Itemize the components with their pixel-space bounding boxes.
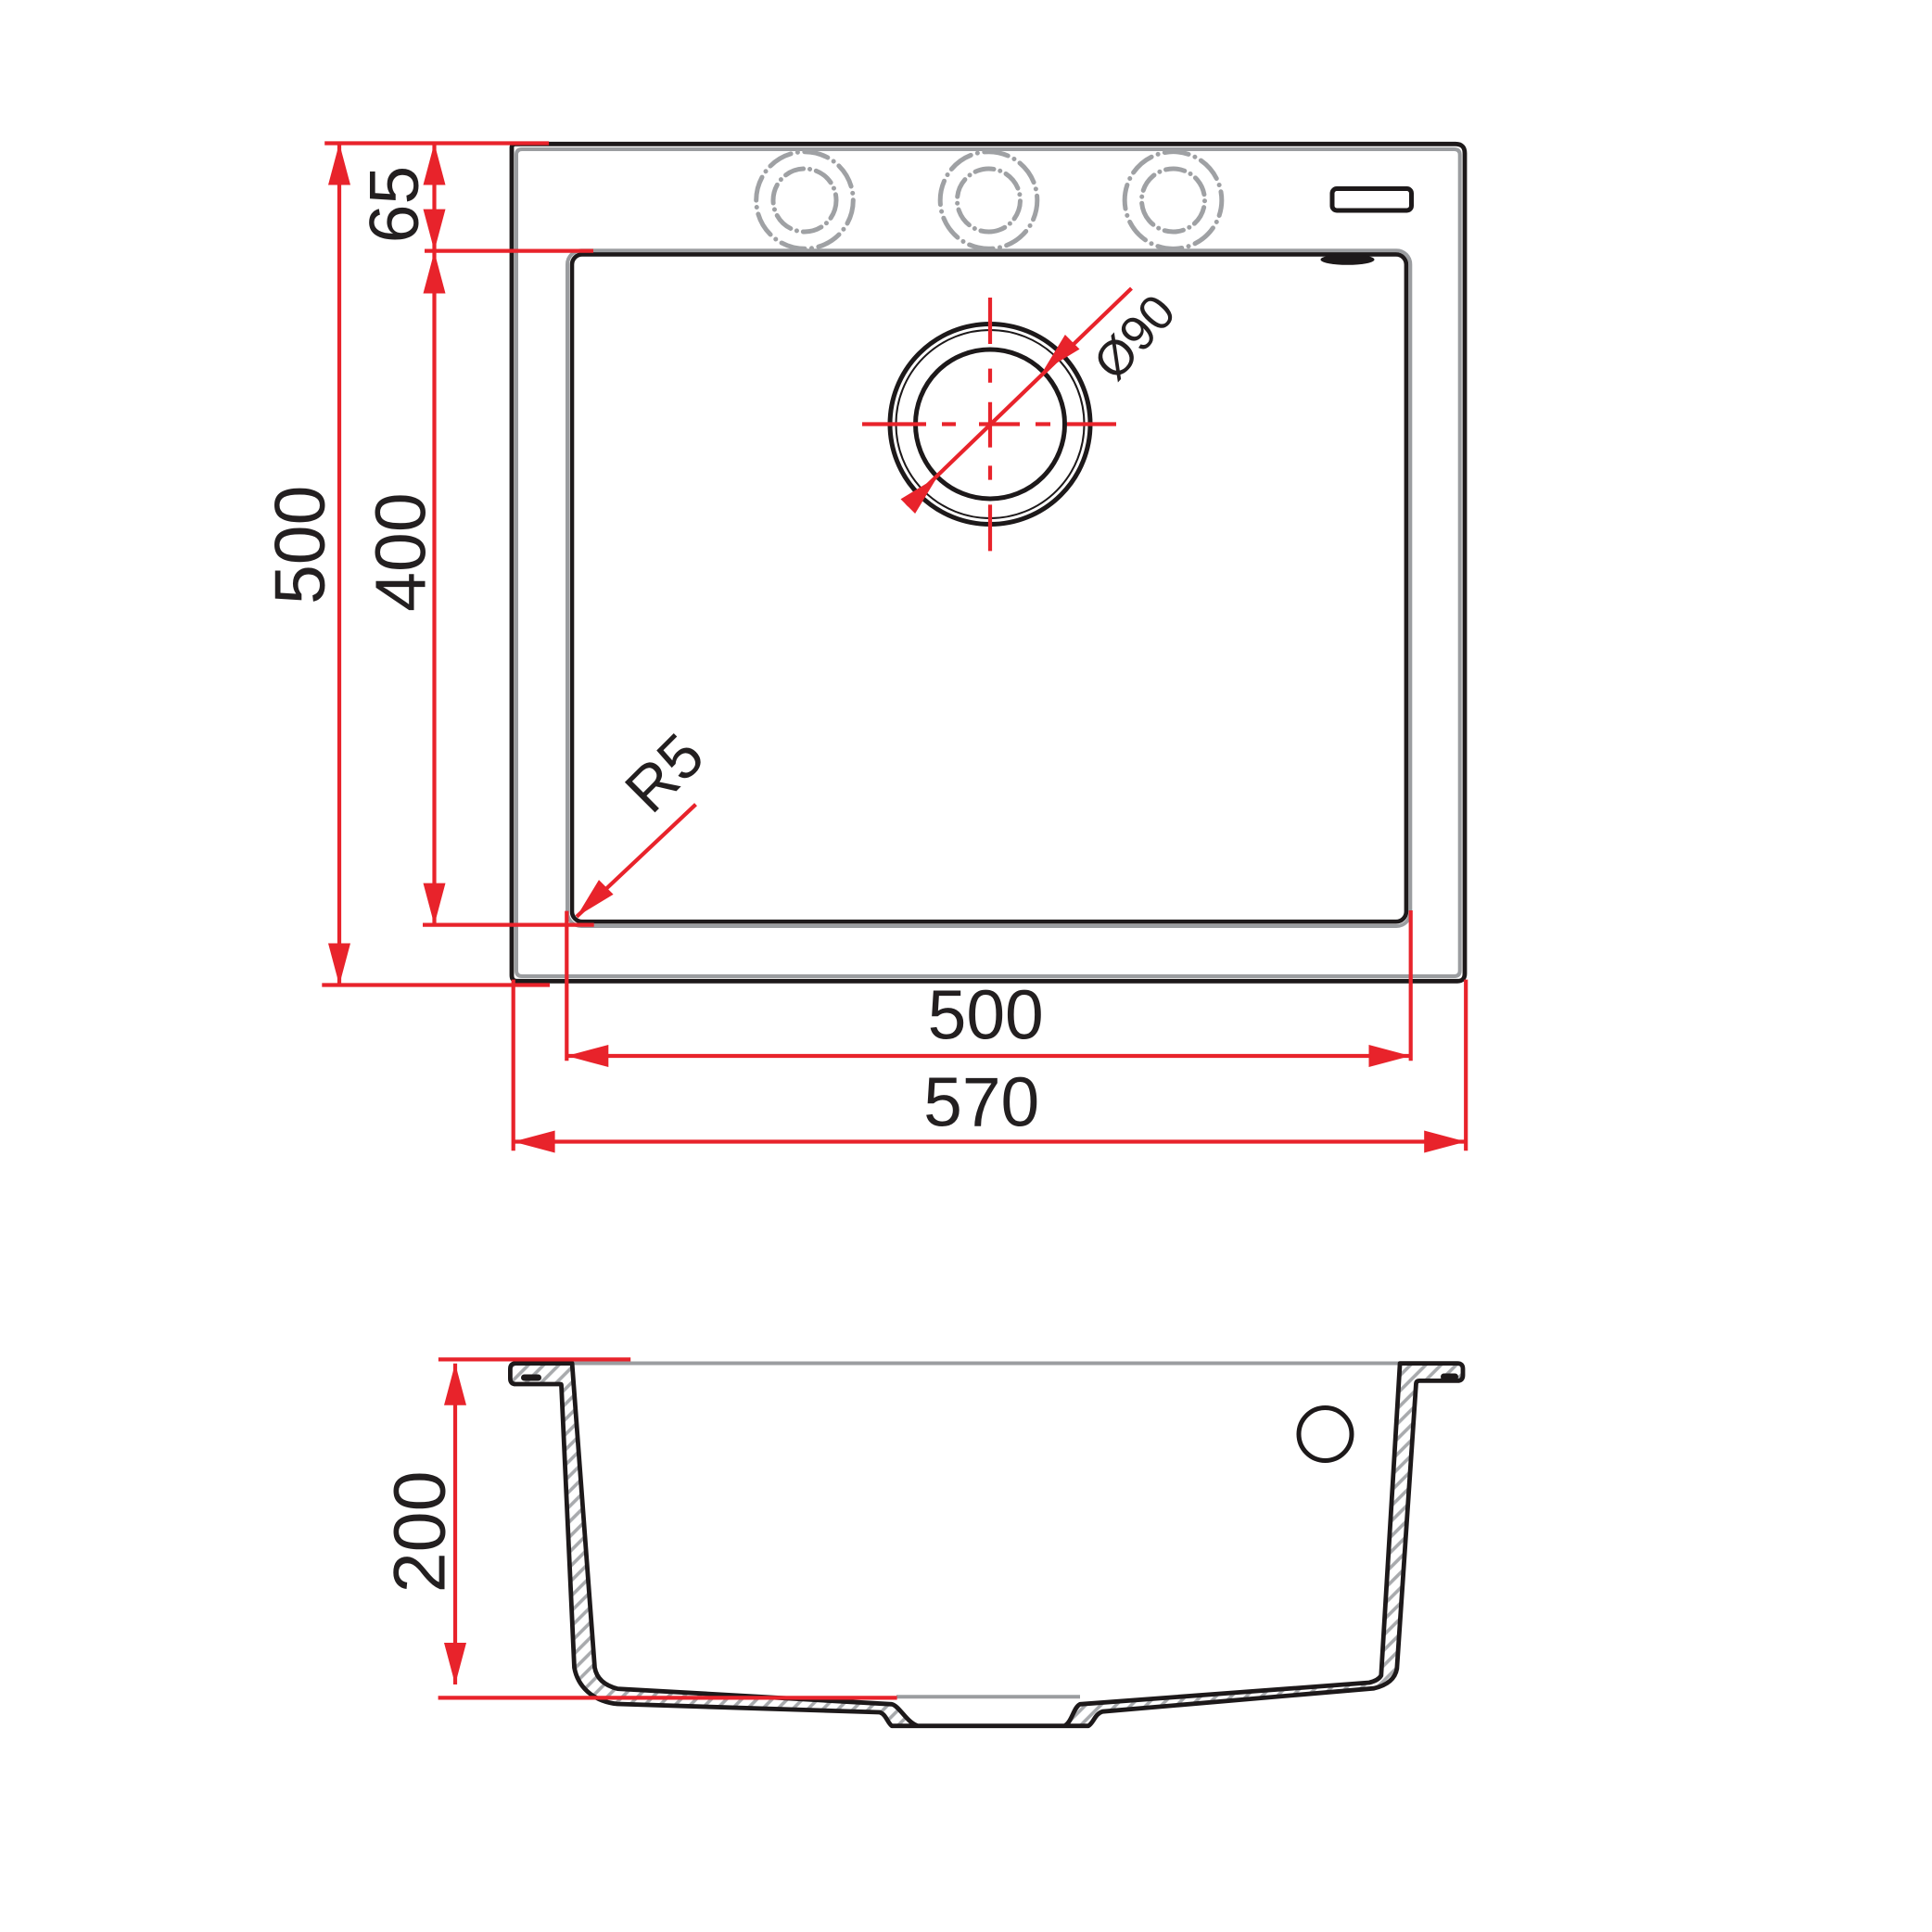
svg-text:500: 500 xyxy=(928,976,1044,1054)
svg-text:500: 500 xyxy=(261,486,340,604)
svg-text:65: 65 xyxy=(355,166,433,243)
svg-text:400: 400 xyxy=(362,492,441,611)
svg-text:200: 200 xyxy=(377,1470,460,1593)
svg-text:570: 570 xyxy=(923,1062,1039,1140)
